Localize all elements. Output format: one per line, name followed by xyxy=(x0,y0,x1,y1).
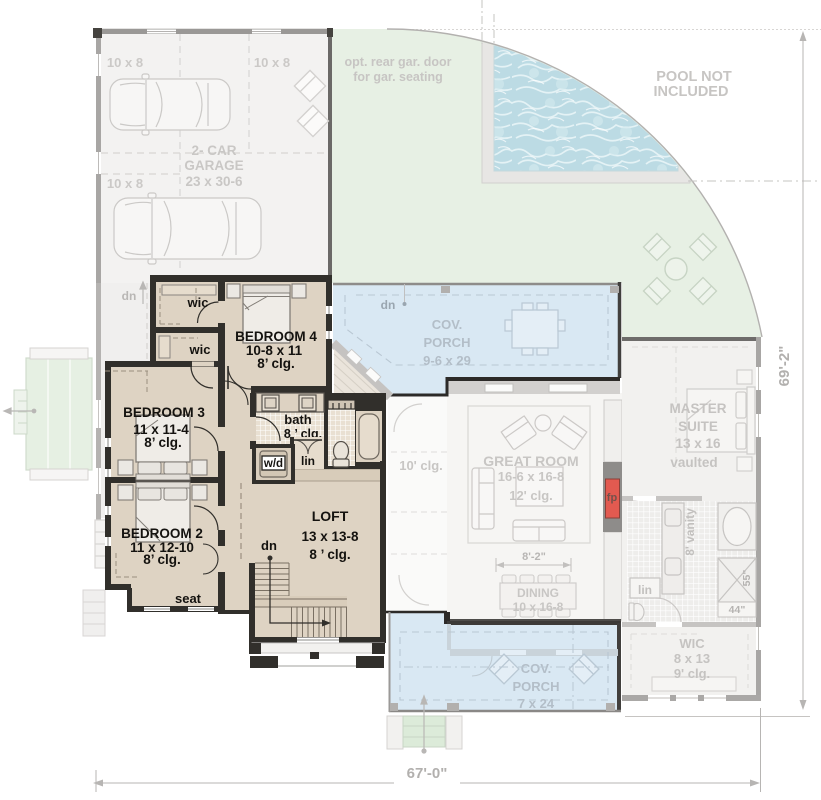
svg-text:vaulted: vaulted xyxy=(670,455,717,470)
svg-text:bath: bath xyxy=(284,412,312,427)
svg-text:lin: lin xyxy=(638,583,652,597)
svg-text:55": 55" xyxy=(741,570,753,587)
svg-text:13 x 13-8: 13 x 13-8 xyxy=(301,529,359,544)
svg-text:12' clg.: 12' clg. xyxy=(509,488,553,503)
svg-text:for gar. seating: for gar. seating xyxy=(353,70,443,84)
svg-text:INCLUDED: INCLUDED xyxy=(654,84,729,100)
svg-text:BEDROOM 4: BEDROOM 4 xyxy=(235,329,317,344)
svg-text:8'-2": 8'-2" xyxy=(522,551,546,563)
svg-text:BEDROOM 3: BEDROOM 3 xyxy=(123,405,205,420)
svg-text:7 x 24: 7 x 24 xyxy=(518,696,555,711)
svg-text:10 x 8: 10 x 8 xyxy=(107,176,143,191)
svg-text:10 x 16-8: 10 x 16-8 xyxy=(513,600,564,614)
svg-text:PORCH: PORCH xyxy=(424,335,471,350)
svg-text:8' vanity: 8' vanity xyxy=(683,508,697,556)
svg-text:9' clg.: 9' clg. xyxy=(674,666,710,681)
svg-text:44": 44" xyxy=(729,604,746,616)
svg-text:dn: dn xyxy=(122,289,137,303)
svg-text:wic: wic xyxy=(187,295,209,310)
svg-text:COV.: COV. xyxy=(521,661,552,676)
svg-text:10' clg.: 10' clg. xyxy=(399,458,443,473)
svg-text:seat: seat xyxy=(175,591,202,606)
svg-text:dn: dn xyxy=(261,538,277,553)
svg-text:2- CAR: 2- CAR xyxy=(191,143,236,158)
svg-text:MASTER: MASTER xyxy=(670,401,727,416)
svg-text:fp: fp xyxy=(607,492,618,504)
svg-text:DINING: DINING xyxy=(517,586,559,600)
svg-text:lin: lin xyxy=(301,454,315,468)
svg-text:8 x 13: 8 x 13 xyxy=(674,651,710,666)
svg-text:GREAT ROOM: GREAT ROOM xyxy=(483,453,578,469)
svg-text:8’ clg.: 8’ clg. xyxy=(144,435,182,450)
svg-text:GARAGE: GARAGE xyxy=(184,158,243,173)
svg-text:WIC: WIC xyxy=(679,636,705,651)
svg-text:8’ clg.: 8’ clg. xyxy=(143,552,181,567)
svg-text:wic: wic xyxy=(189,342,211,357)
svg-text:LOFT: LOFT xyxy=(312,508,349,524)
svg-text:BEDROOM 2: BEDROOM 2 xyxy=(121,526,203,541)
svg-text:w/d: w/d xyxy=(263,458,283,470)
svg-text:10 x 8: 10 x 8 xyxy=(107,55,143,70)
svg-text:67'-0": 67'-0" xyxy=(407,765,448,782)
svg-text:16-6 x 16-8: 16-6 x 16-8 xyxy=(498,469,565,484)
svg-text:9-6 x 29: 9-6 x 29 xyxy=(423,353,471,368)
svg-text:23 x 30-6: 23 x 30-6 xyxy=(185,174,243,189)
svg-text:PORCH: PORCH xyxy=(513,679,560,694)
svg-text:8 ’ clg.: 8 ’ clg. xyxy=(309,547,350,562)
svg-text:10 x 8: 10 x 8 xyxy=(254,55,290,70)
svg-text:opt. rear gar. door: opt. rear gar. door xyxy=(345,55,452,69)
svg-text:COV.: COV. xyxy=(432,317,463,332)
svg-text:8’ clg.: 8’ clg. xyxy=(257,356,295,371)
svg-text:POOL NOT: POOL NOT xyxy=(656,69,732,85)
svg-text:dn: dn xyxy=(381,298,396,312)
svg-text:69'-2": 69'-2" xyxy=(776,346,793,387)
svg-text:SUITE: SUITE xyxy=(678,419,718,434)
svg-text:13 x 16: 13 x 16 xyxy=(675,436,721,451)
